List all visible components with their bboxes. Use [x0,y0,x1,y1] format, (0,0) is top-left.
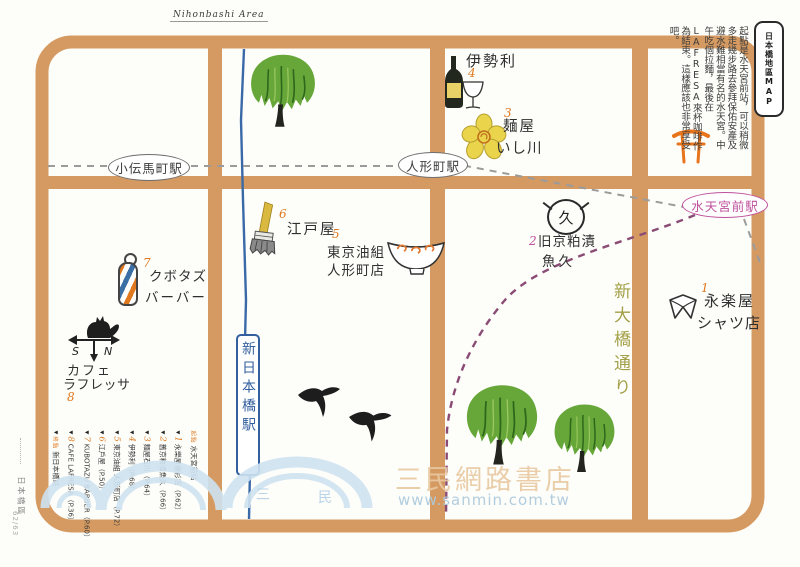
wine-bottle-icon [445,56,463,108]
spot-number-6: 6 [279,207,287,221]
spot-number-5: 5 [332,227,340,241]
spot-label-uokyu: 魚久 [542,250,575,270]
station-bubble-kodenmacho: 小伝馬町駅 [108,154,190,181]
watermark-char-2: 民 [318,487,332,507]
willow-tree-icon [251,55,315,127]
spot-label-edoya: 江戸屋 [287,218,337,239]
brush-icon [250,201,281,256]
intro-paragraph: 起點是水天宮前站，可以稍微多走幾步路去參拜保佑安產及避水難相當有名的水天宮。中午… [662,26,748,158]
wine-glass-icon [463,82,483,108]
station-bubble-ningyocho: 人形町駅 [398,152,468,178]
spot-number-4: 4 [468,66,476,80]
watermark-url: www.sanmin.com.tw [398,491,570,509]
spot-label-tokyo-aburagumi: 東京油組 [327,241,385,261]
map-title: 日本橋地區MAP [764,32,775,107]
weathervane-icon: S N [68,316,120,362]
shirt-collar-icon [670,295,696,318]
vane-letter-n: N [104,345,112,358]
spot-label-menya: 麺屋 [503,115,536,136]
road-vertical-center [430,48,445,520]
swallow-icon [298,387,340,417]
spot-label-barber: バーバー [145,286,207,306]
spot-label-kyokasuzuke: 旧京粕漬 [538,230,596,250]
station-bubble-suitengumae: 水天宮前駅 [682,192,768,218]
spot-label-ningyocho-ten: 人形町店 [327,259,385,279]
spot-number-2: 2 [529,234,537,248]
barber-pole-icon [118,262,138,306]
willow-tree-icon [467,385,537,464]
watermark-char-1: 三 [256,484,270,504]
road-vertical-left [208,48,222,520]
watermark-logo-icon [35,452,405,516]
spot-label-kubotazu: クボタズ [149,265,207,285]
spot-label-ishikawa: いし川 [496,137,543,158]
spot-label-eirakuya: 永楽屋 [704,290,755,311]
street-label-shin-ohashi-dori: 新大橋通り [608,282,633,402]
road-vertical-right [632,48,648,520]
spot-label-shirt-shop: シャツ店 [697,312,761,333]
map-title-box: 日本橋地區MAP [754,21,784,117]
swallow-icon [347,409,392,443]
vane-letter-s: S [72,345,79,358]
spot-number-8: 8 [67,390,75,404]
book-page: Nihonbashi Area 日本橋區 62/63 [0,0,800,567]
